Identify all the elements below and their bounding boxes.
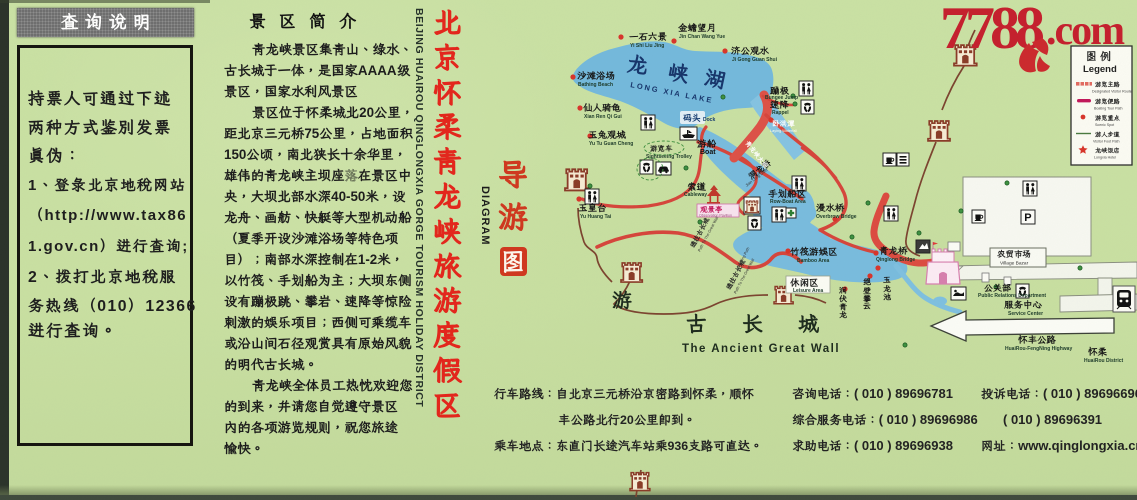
svg-text:Yu Huang Tai: Yu Huang Tai bbox=[580, 214, 612, 220]
svg-text:玉龙池: 玉龙池 bbox=[882, 275, 892, 302]
svg-text:城: 城 bbox=[798, 309, 819, 337]
svg-text:Longxia Hotel: Longxia Hotel bbox=[1094, 156, 1116, 160]
svg-text:Scenic Spot: Scenic Spot bbox=[1095, 123, 1114, 127]
svg-text:济公观水: 济公观水 bbox=[730, 44, 770, 57]
svg-text:Xian Ren Qi Gui: Xian Ren Qi Gui bbox=[584, 114, 622, 120]
svg-text:Overbrow Bridge: Overbrow Bridge bbox=[816, 214, 857, 220]
svg-text:仙人骑龟: 仙人骑龟 bbox=[583, 101, 622, 114]
svg-text:Yi Shi Liu Jing: Yi Shi Liu Jing bbox=[630, 43, 664, 49]
svg-text:Public Relations Department: Public Relations Department bbox=[978, 293, 1046, 299]
svg-text:游人步道: 游人步道 bbox=[1095, 131, 1121, 139]
svg-text:怀柔: 怀柔 bbox=[1088, 345, 1108, 358]
svg-text:卧洪潭: 卧洪潭 bbox=[772, 119, 795, 129]
svg-text:Boating Tour Path: Boating Tour Path bbox=[1094, 107, 1123, 111]
svg-text:游览便路: 游览便路 bbox=[1095, 98, 1121, 106]
svg-text:服务中心: 服务中心 bbox=[1004, 298, 1043, 311]
svg-text:Yu Tu Guan Cheng: Yu Tu Guan Cheng bbox=[589, 141, 633, 147]
svg-text:沙滩浴场: 沙滩浴场 bbox=[577, 69, 616, 82]
svg-text:Ji Gong Guan Shui: Ji Gong Guan Shui bbox=[732, 57, 778, 63]
svg-text:Rappel: Rappel bbox=[772, 110, 789, 116]
svg-text:Boat: Boat bbox=[700, 149, 716, 156]
svg-text:Laying Waterfall: Laying Waterfall bbox=[770, 129, 797, 133]
svg-text:游览重点: 游览重点 bbox=[1095, 114, 1121, 122]
svg-text:Leisure Area: Leisure Area bbox=[793, 288, 823, 294]
svg-text:玉皇台: 玉皇台 bbox=[578, 201, 607, 214]
svg-text:一石六景: 一石六景 bbox=[629, 30, 668, 43]
svg-text:Designated Visitor Route: Designated Visitor Route bbox=[1092, 90, 1132, 94]
svg-text:Qinglong Bridge: Qinglong Bridge bbox=[876, 257, 915, 263]
svg-text:Bamboo Area: Bamboo Area bbox=[797, 258, 830, 264]
svg-text:绝壁攀云: 绝壁攀云 bbox=[862, 277, 872, 310]
svg-text:Service Center: Service Center bbox=[1008, 311, 1043, 317]
svg-text:竹筏游娱区: 竹筏游娱区 bbox=[790, 245, 838, 258]
svg-text:P: P bbox=[1024, 212, 1031, 224]
svg-text:Row-Boat Area: Row-Boat Area bbox=[770, 199, 806, 205]
svg-text:Cableway: Cableway bbox=[684, 192, 707, 198]
svg-text:HuaiRou-FengNing Highway: HuaiRou-FengNing Highway bbox=[1005, 346, 1072, 352]
svg-text:长: 长 bbox=[742, 309, 763, 337]
svg-text:The Ancient Great Wall: The Ancient Great Wall bbox=[682, 343, 840, 355]
svg-text:怀丰公路: 怀丰公路 bbox=[1018, 333, 1057, 346]
svg-text:玉兔观城: 玉兔观城 bbox=[588, 128, 627, 141]
svg-text:龙: 龙 bbox=[625, 49, 650, 80]
svg-text:龙峡饭店: 龙峡饭店 bbox=[1095, 147, 1120, 155]
svg-text:游览车: 游览车 bbox=[650, 144, 673, 154]
svg-text:Sightseeing Trolley: Sightseeing Trolley bbox=[646, 154, 692, 160]
svg-text:古: 古 bbox=[686, 309, 707, 337]
svg-text:游: 游 bbox=[612, 286, 632, 313]
svg-text:码头: 码头 bbox=[682, 112, 701, 124]
svg-text:Bungee Jump: Bungee Jump bbox=[765, 95, 798, 101]
svg-text:Village Bazar: Village Bazar bbox=[1000, 261, 1029, 267]
svg-text:青龙桥: 青龙桥 bbox=[879, 244, 908, 257]
svg-text:游览主路: 游览主路 bbox=[1095, 81, 1121, 89]
svg-text:Visitor Foot Path: Visitor Foot Path bbox=[1093, 140, 1120, 144]
svg-text:Legend: Legend bbox=[1083, 64, 1117, 75]
svg-text:HuaiRou District: HuaiRou District bbox=[1084, 358, 1124, 364]
svg-text:涧伏青龙: 涧伏青龙 bbox=[838, 285, 848, 320]
svg-text:Bathing Beach: Bathing Beach bbox=[578, 82, 613, 88]
svg-text:漫水桥: 漫水桥 bbox=[816, 201, 845, 214]
svg-text:金蟾望月: 金蟾望月 bbox=[677, 21, 716, 34]
svg-text:Dock: Dock bbox=[703, 117, 715, 123]
svg-text:.com: .com bbox=[1046, 8, 1125, 54]
svg-text:Jin Chan Wang Yue: Jin Chan Wang Yue bbox=[679, 34, 725, 40]
svg-text:农贸市场: 农贸市场 bbox=[997, 249, 1031, 260]
